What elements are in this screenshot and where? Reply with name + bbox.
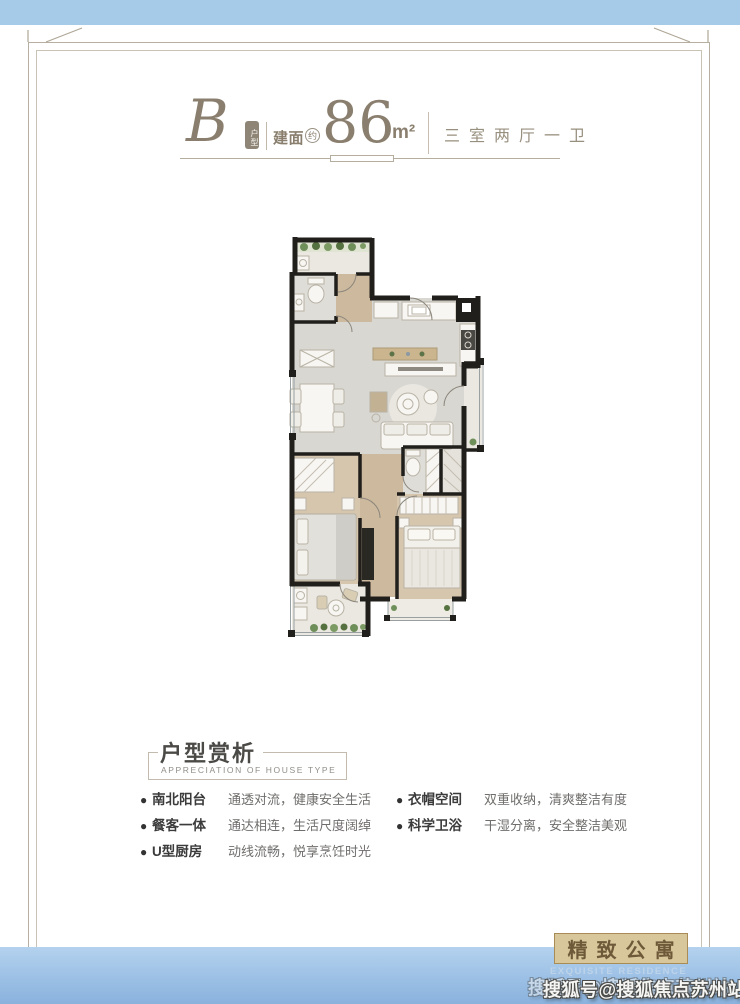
feature-label: 餐客一体 bbox=[152, 814, 218, 834]
feature-desc: 通透对流，健康安全生活 bbox=[218, 789, 371, 808]
bullet-icon: ● bbox=[140, 793, 152, 807]
feature-row: ● 衣帽空间 双重收纳，清爽整洁有度 bbox=[396, 788, 646, 814]
layout-description: 三室两厅一卫 bbox=[444, 122, 594, 146]
floor-plan bbox=[280, 236, 484, 644]
stamp-badge: 精致公寓 bbox=[554, 933, 688, 964]
watermark: 搜狐号@搜狐焦点苏州站 bbox=[543, 976, 740, 1002]
feature-list-left: ● 南北阳台 通透对流，健康安全生活 ● 餐客一体 通达相连，生活尺度阔绰 ● … bbox=[140, 788, 390, 866]
feature-label: U型厨房 bbox=[152, 840, 218, 860]
feature-label: 科学卫浴 bbox=[408, 814, 474, 834]
header-underline-ornament bbox=[330, 155, 394, 162]
feature-desc: 动线流畅，悦享烹饪时光 bbox=[218, 841, 371, 860]
feature-desc: 干湿分离，安全整洁美观 bbox=[474, 815, 627, 834]
bullet-icon: ● bbox=[396, 793, 408, 807]
bullet-icon: ● bbox=[140, 819, 152, 833]
feature-row: ● 南北阳台 通透对流，健康安全生活 bbox=[140, 788, 390, 814]
analysis-subtitle: APPRECIATION OF HOUSE TYPE bbox=[161, 765, 336, 775]
feature-row: ● 科学卫浴 干湿分离，安全整洁美观 bbox=[396, 814, 646, 840]
feature-label: 衣帽空间 bbox=[408, 788, 474, 808]
feature-desc: 双重收纳，清爽整洁有度 bbox=[474, 789, 627, 808]
bullet-icon: ● bbox=[396, 819, 408, 833]
area-approx-circle: 约 bbox=[305, 128, 320, 143]
header-divider-vertical bbox=[428, 112, 429, 154]
area-value: 86 bbox=[322, 95, 395, 152]
area-label: 建面 bbox=[273, 127, 304, 148]
analysis-title: 户型赏析 bbox=[158, 736, 263, 768]
bullet-icon: ● bbox=[140, 845, 152, 859]
feature-row: ● 餐客一体 通达相连，生活尺度阔绰 bbox=[140, 814, 390, 840]
poster-page: { "header": { "unit_letter": "B", "unit_… bbox=[0, 0, 740, 1004]
top-blue-band bbox=[0, 0, 740, 25]
feature-list-right: ● 衣帽空间 双重收纳，清爽整洁有度 ● 科学卫浴 干湿分离，安全整洁美观 bbox=[396, 788, 646, 840]
area-unit: m² bbox=[392, 122, 415, 144]
feature-row: ● U型厨房 动线流畅，悦享烹饪时光 bbox=[140, 840, 390, 866]
header-divider-small bbox=[266, 122, 267, 150]
feature-label: 南北阳台 bbox=[152, 788, 218, 808]
unit-type-tag: 户型 bbox=[245, 121, 259, 149]
feature-desc: 通达相连，生活尺度阔绰 bbox=[218, 815, 371, 834]
